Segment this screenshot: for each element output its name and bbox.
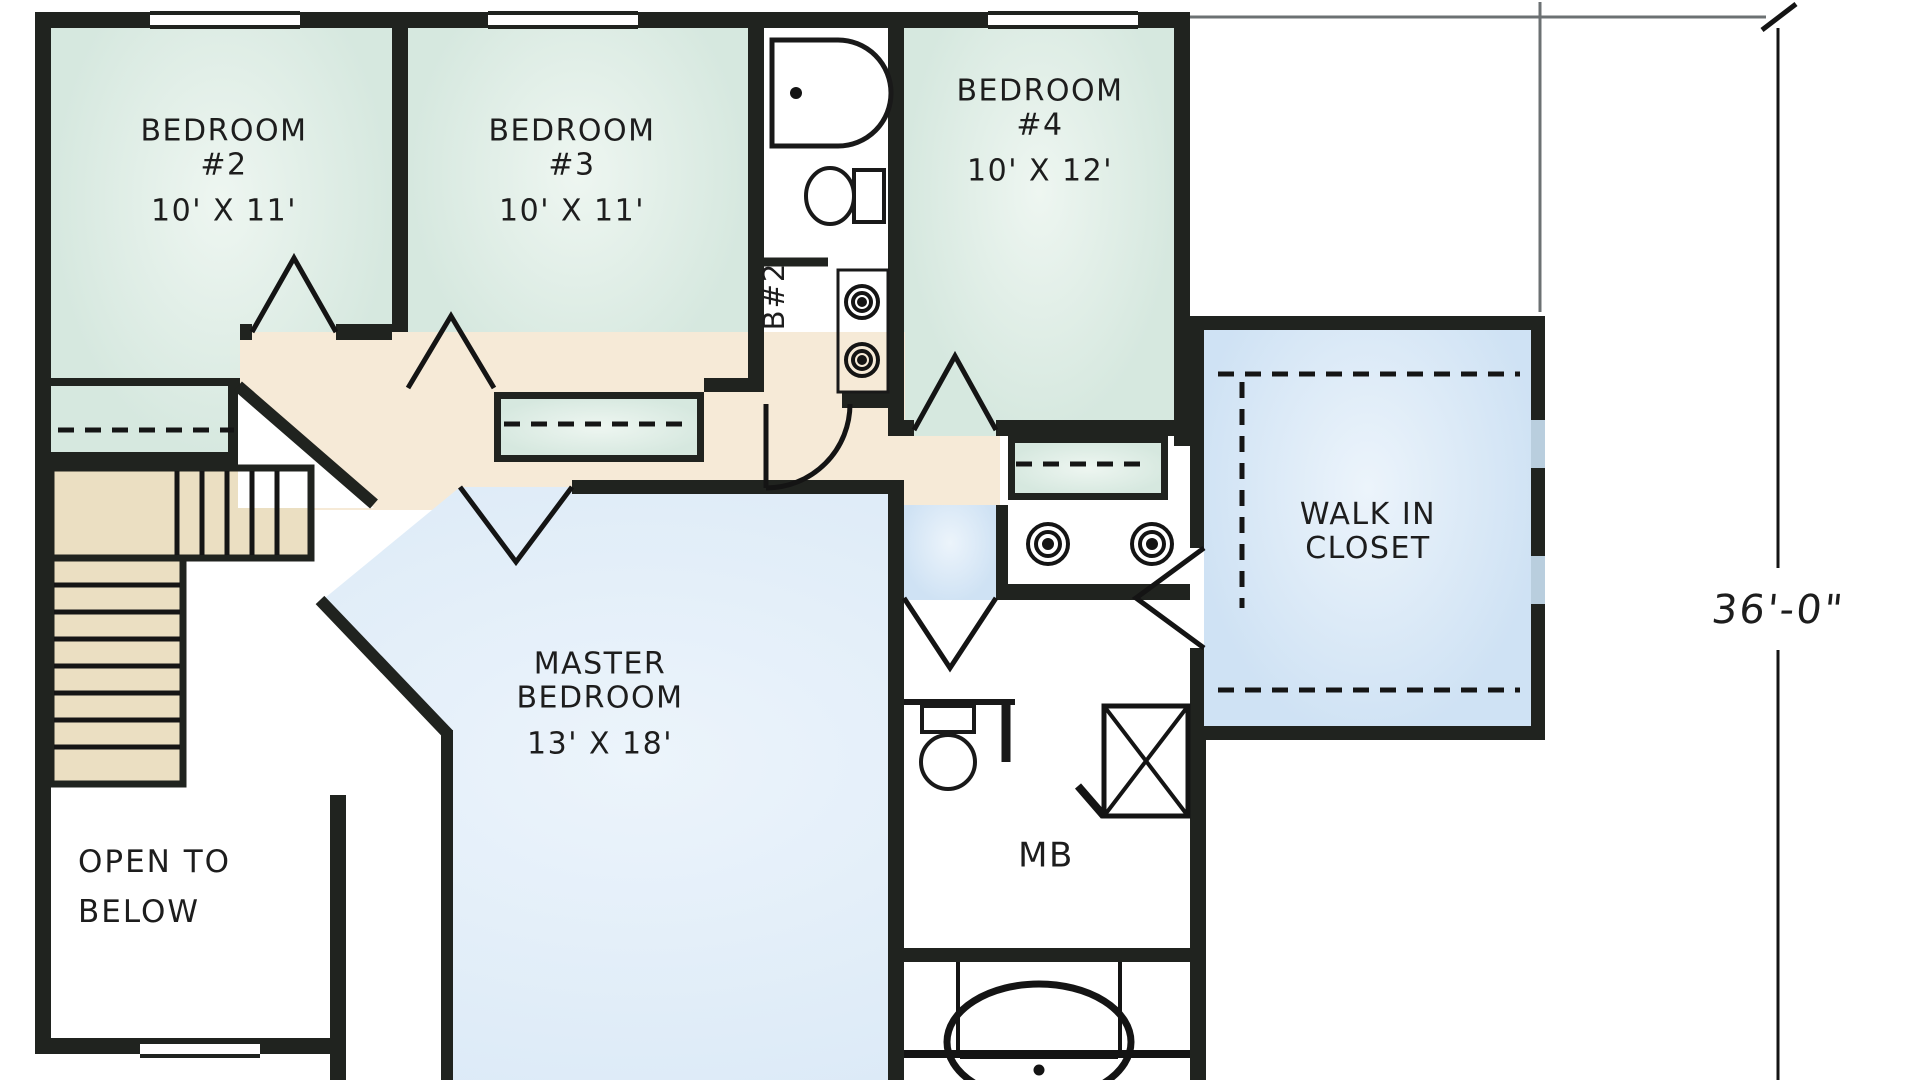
label-master-bedroom: MASTER BEDROOM 13' X 18' [516,648,683,763]
master-bedroom-door [460,487,572,562]
sink-icon [846,286,878,376]
room-dims: 13' X 18' [516,728,683,762]
dimension-lines [1190,2,1796,1080]
bath2-vanity [838,270,888,392]
label-bedroom-2: BEDROOM #2 10' X 11' [140,115,307,230]
toilet-tank-icon [854,170,884,222]
room-name: WALK IN [1300,498,1436,532]
tub-drain-icon [790,87,802,99]
closet-windows [1531,420,1545,604]
room-name: BELOW [78,888,231,938]
toilet-icon [921,735,975,789]
room-dims: 10' X 11' [488,195,655,229]
room-number: #3 [488,149,655,183]
room-name: CLOSET [1300,532,1436,566]
room-name: BEDROOM [956,75,1123,109]
room-name: MB [1018,837,1074,876]
room-name: MASTER [516,648,683,682]
toilet-tank-icon [922,706,974,732]
bath2-fixtures [762,40,891,392]
label-bedroom-4: BEDROOM #4 10' X 12' [956,75,1123,190]
bathtub-icon [772,40,891,146]
label-walk-in-closet: WALK IN CLOSET [1300,498,1436,566]
room-number: #2 [140,149,307,183]
master-bath-doors [904,598,996,668]
dimension-value: 36'-0" [1709,587,1846,633]
label-bath-2: B#2 [757,262,791,331]
wall-master-diagonal [320,600,448,734]
room-dims: 10' X 12' [956,155,1123,189]
floor-plan: BEDROOM #2 10' X 11' BEDROOM #3 10' X 11… [0,0,1920,1080]
dimension-tick [1762,4,1796,30]
label-master-bath: MB [1018,837,1074,876]
room-dims: 10' X 11' [140,195,307,229]
staircase [51,468,311,784]
garden-tub-icon [904,962,1190,1080]
room-name: B#2 [757,262,791,331]
bedroom3-door [408,316,494,388]
master-bath-fixtures [904,702,1190,1080]
dimension-text: 36'-0" [1709,587,1846,633]
shower-icon [1078,706,1188,816]
stair-treads [54,471,277,747]
bedroom4-door [914,356,996,430]
wall-master-west [441,730,453,1080]
room-name: OPEN TO [78,838,231,888]
room-name: BEDROOM [516,682,683,716]
bath2-door [766,404,850,488]
room-name: BEDROOM [488,115,655,149]
label-open-to-below: OPEN TO BELOW [78,838,231,937]
label-bedroom-3: BEDROOM #3 10' X 11' [488,115,655,230]
room-name: BEDROOM [140,115,307,149]
toilet-icon [806,168,854,224]
stairwell-void [238,386,453,1080]
bedroom2-door [252,258,336,332]
room-number: #4 [956,109,1123,143]
door-swings [252,258,1204,668]
master-vanity-sinks [1028,524,1172,564]
